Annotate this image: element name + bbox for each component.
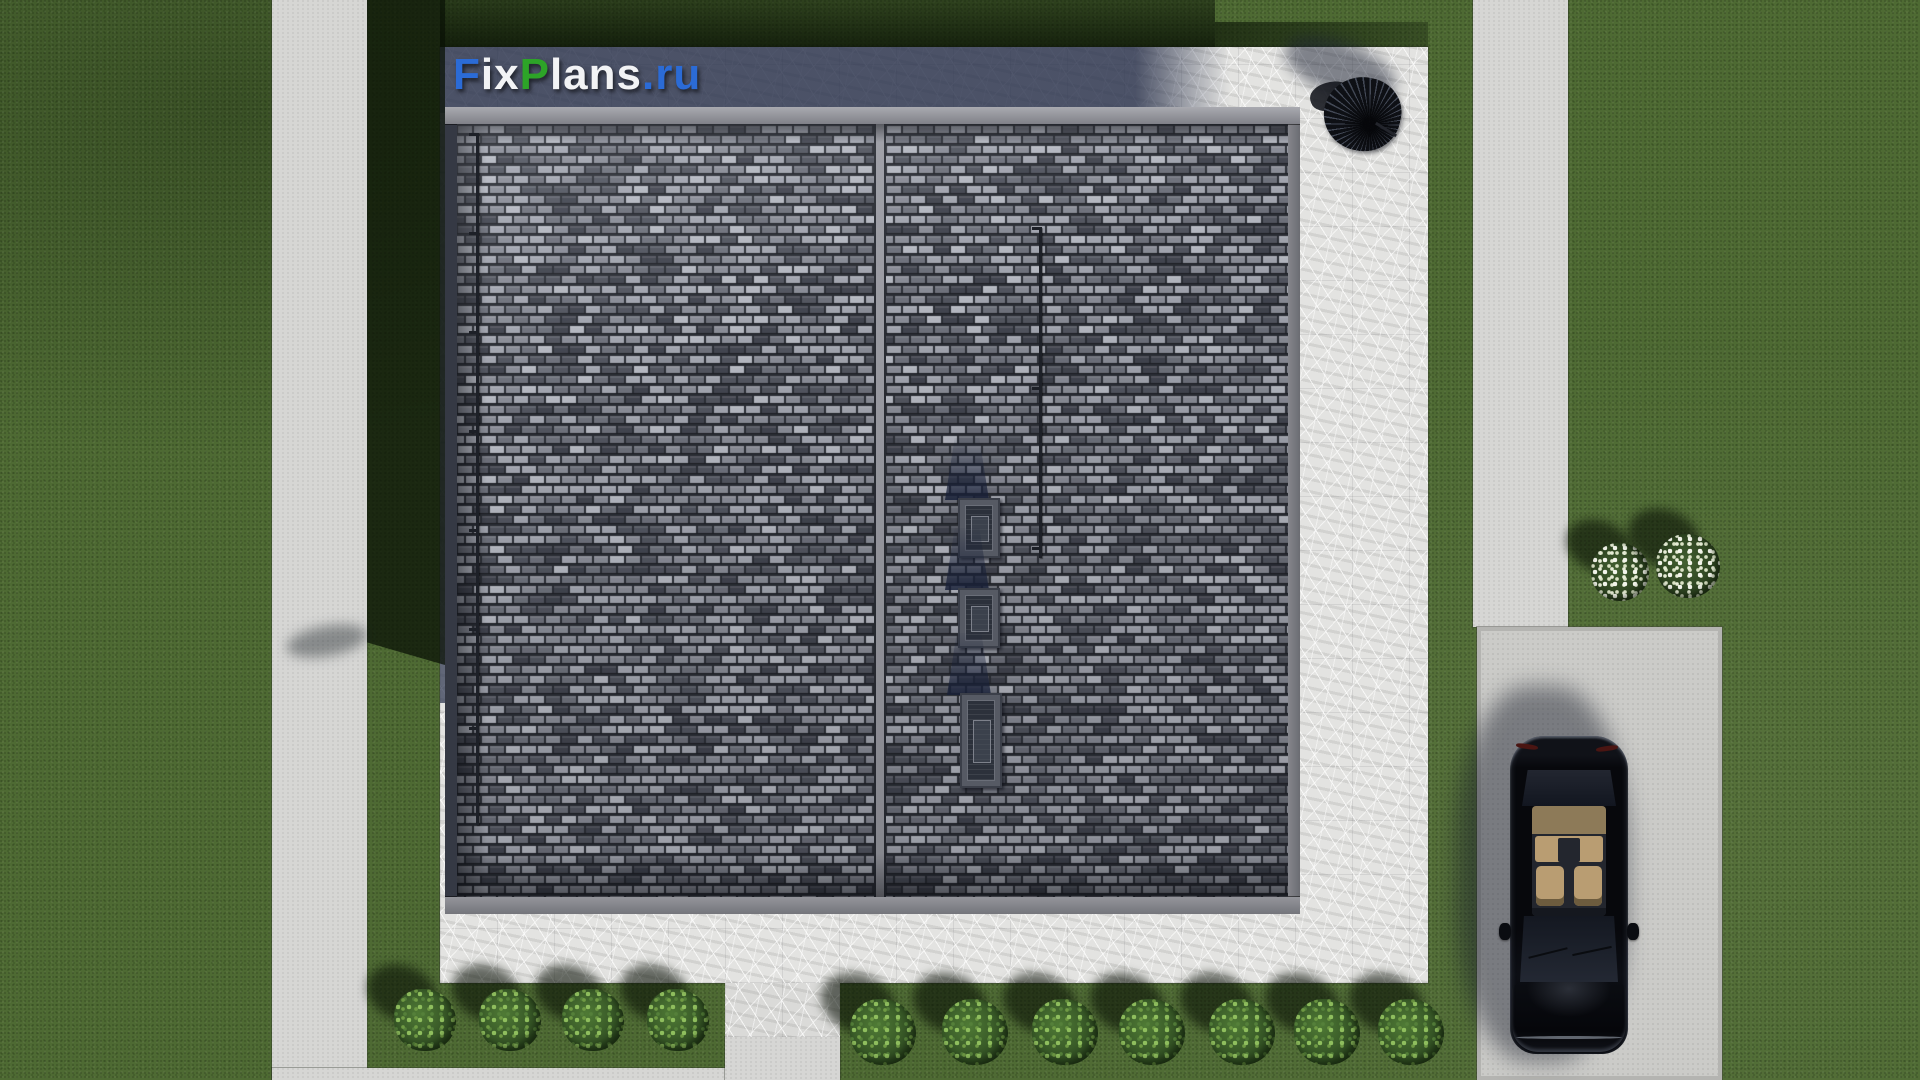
walkway-bottom: [272, 1068, 725, 1080]
bush-foliage: [1294, 999, 1360, 1065]
car-center-console: [1558, 838, 1580, 862]
car-wiper: [1572, 946, 1612, 956]
bush: [1378, 999, 1444, 1065]
bush: [647, 989, 709, 1051]
car-windshield: [1520, 916, 1618, 982]
bush: [1119, 999, 1185, 1065]
bush-foliage: [1378, 999, 1444, 1065]
bush-foliage: [394, 989, 456, 1051]
walkway-entry-stub: [725, 1037, 840, 1080]
car-front-seat-right: [1574, 866, 1602, 906]
roof-fascia-bottom: [445, 897, 1300, 914]
car-sunroof-cabin: [1532, 806, 1606, 916]
house-shadow-left-strip: [367, 0, 445, 665]
bush: [942, 999, 1008, 1065]
aerial-house-render: FixPlans.ru: [0, 0, 1920, 1080]
roof-fascia-right: [1288, 107, 1300, 914]
shadow-band-above-pad: [440, 0, 1215, 47]
bush: [1209, 999, 1275, 1065]
roof-rod-hook: [469, 232, 478, 235]
bush-foliage: [562, 989, 624, 1051]
bush-foliage: [1209, 999, 1275, 1065]
roof-rod-hook: [469, 133, 478, 136]
roof-rod-hook: [1032, 387, 1041, 390]
roof-rod-hook: [469, 628, 478, 631]
walkway-left: [272, 0, 367, 1080]
skylight-frame-detail: [971, 606, 988, 633]
fixplans-watermark: FixPlans.ru: [453, 50, 701, 100]
car-dashboard: [1532, 908, 1606, 916]
roof-rod-hook: [1032, 227, 1041, 230]
roof-fascia-left: [445, 107, 457, 914]
car-wiper: [1528, 947, 1567, 959]
watermark-segment: ix: [481, 50, 520, 99]
roof-rod: [1039, 227, 1042, 558]
bush-foliage: [942, 999, 1008, 1065]
car-parcel-shelf: [1532, 806, 1606, 834]
roof-skylight: [960, 693, 1002, 788]
bush: [562, 989, 624, 1051]
bush: [1032, 999, 1098, 1065]
roof-rod: [476, 133, 479, 825]
car-front-seat-left: [1536, 866, 1564, 906]
car-hood: [1512, 982, 1626, 1052]
roof-rod-hook: [469, 331, 478, 334]
watermark-segment: lans: [550, 50, 642, 99]
roof-fascia-top: [445, 107, 1300, 124]
roof-rod-hook: [469, 529, 478, 532]
flower-bush-foliage: [1656, 534, 1720, 598]
watermark-segment: F: [453, 50, 481, 99]
roof-rod-hook: [1032, 547, 1041, 550]
roof-rod-hook: [469, 430, 478, 433]
skylight-frame-detail: [973, 720, 990, 762]
car-front-highlight: [1516, 1036, 1622, 1039]
car-rear-window: [1522, 770, 1616, 806]
bush-foliage: [1119, 999, 1185, 1065]
car-side-mirror: [1499, 923, 1511, 940]
bush-foliage: [479, 989, 541, 1051]
bush-foliage: [850, 999, 916, 1065]
walkway-right: [1473, 0, 1568, 627]
watermark-segment: .ru: [642, 50, 701, 99]
bush: [479, 989, 541, 1051]
car-side-mirror: [1627, 923, 1639, 940]
flower-bush: [1656, 534, 1720, 598]
watermark-segment: P: [520, 50, 550, 99]
bush: [394, 989, 456, 1051]
bush: [850, 999, 916, 1065]
roof-rod-hook: [469, 727, 478, 730]
roof-light-tint: [457, 124, 1288, 897]
bush-foliage: [647, 989, 709, 1051]
bush-foliage: [1032, 999, 1098, 1065]
bush: [1294, 999, 1360, 1065]
